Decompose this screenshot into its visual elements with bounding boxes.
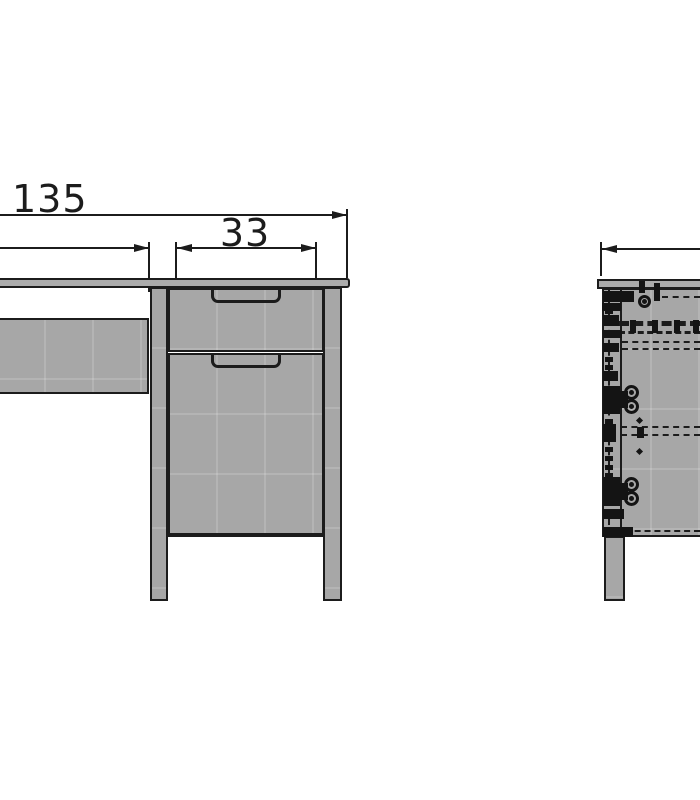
hinge-screw	[629, 482, 634, 487]
arrowhead-left-icon	[602, 245, 617, 253]
extension-line-depth	[600, 242, 602, 276]
desktop-side	[597, 279, 700, 289]
hinge-screw	[629, 404, 634, 409]
slide-bracket	[630, 320, 636, 333]
edge-fitting	[603, 424, 616, 442]
hinge-screw	[629, 390, 634, 395]
hidden-line-top	[662, 296, 700, 298]
dowel-mark	[605, 473, 613, 478]
slide-bracket	[674, 320, 680, 333]
dowel-mark	[605, 365, 613, 370]
hinge-screw	[629, 496, 634, 501]
edge-fitting	[603, 509, 624, 519]
tiny-annotation-mark	[637, 427, 644, 438]
slide-bracket	[693, 320, 699, 333]
side-view	[0, 0, 700, 800]
hinge-mount-plate	[603, 386, 620, 414]
cam-lock-center	[642, 299, 647, 304]
dowel-mark	[605, 309, 613, 314]
technical-drawing-canvas: 135 33	[0, 0, 700, 800]
edge-fitting	[603, 371, 618, 381]
dowel-mark	[605, 419, 613, 424]
dowel-mark	[605, 447, 613, 452]
hinge-mount-plate	[603, 477, 620, 506]
hidden-line-drawer-bottom-a	[622, 341, 700, 343]
desktop-screw	[639, 281, 645, 293]
dowel-mark	[605, 357, 613, 362]
dowel-mark	[605, 456, 613, 461]
slide-bracket	[652, 320, 658, 333]
hidden-line-shelf-a	[621, 426, 700, 428]
hidden-line-shelf-b	[621, 434, 700, 436]
side-front-leg	[604, 536, 625, 601]
dowel-mark	[605, 465, 613, 470]
hidden-line-drawer-bottom-b	[622, 348, 700, 350]
desktop-screw	[654, 283, 660, 301]
edge-fitting	[603, 343, 619, 352]
edge-fitting	[603, 291, 634, 302]
edge-fitting	[603, 527, 633, 537]
edge-fitting	[603, 315, 619, 326]
edge-fitting	[603, 330, 622, 338]
